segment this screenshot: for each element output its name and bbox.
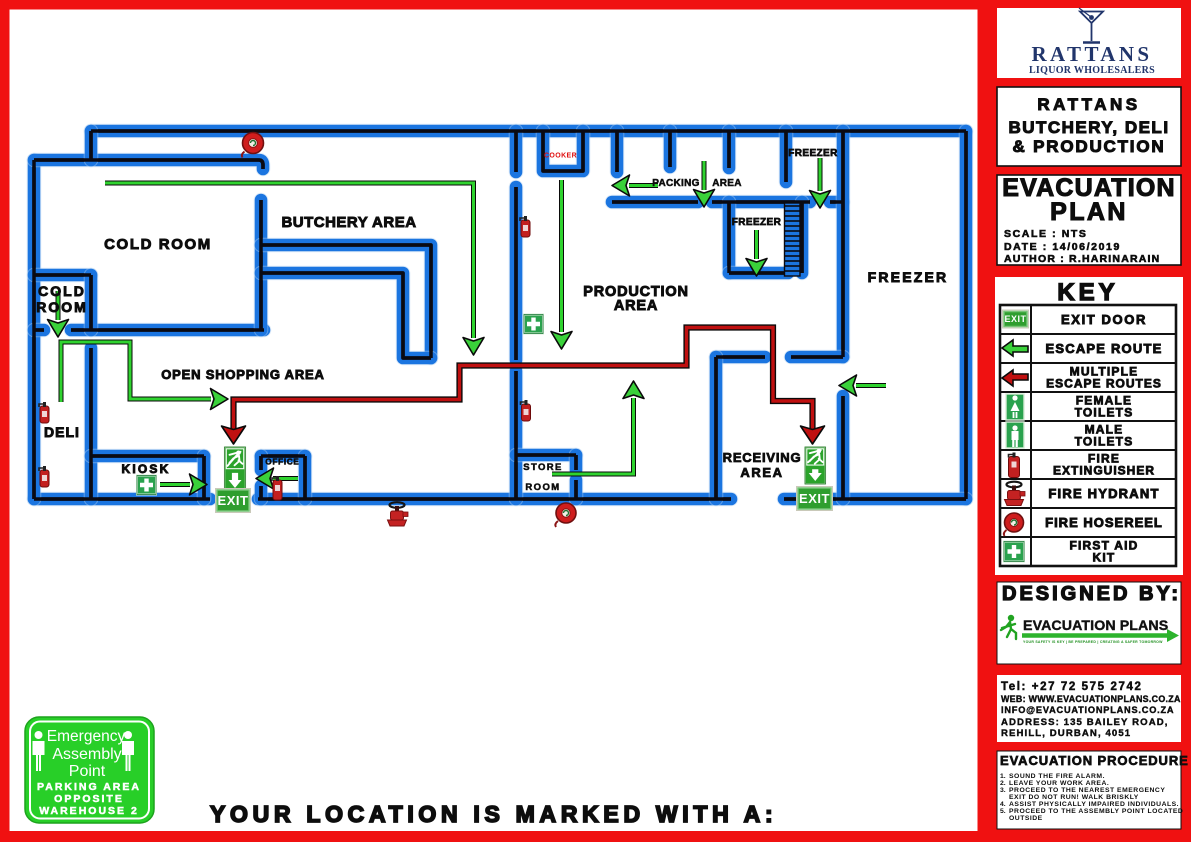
svg-text:YOUR SAFETY IS KEY | BE PREPAR: YOUR SAFETY IS KEY | BE PREPARED | CREAT… — [1023, 640, 1163, 644]
svg-text:LEAVE YOUR WORK AREA.: LEAVE YOUR WORK AREA. — [1009, 780, 1109, 787]
svg-text:EXIT DOOR: EXIT DOOR — [1061, 312, 1147, 327]
svg-text:FREEZER: FREEZER — [788, 148, 838, 159]
svg-text:EXIT: EXIT — [218, 493, 249, 508]
svg-text:BUTCHERY, DELI: BUTCHERY, DELI — [1008, 118, 1169, 137]
svg-text:KIOSK: KIOSK — [121, 462, 170, 476]
svg-text:ASSIST PHYSICALLY IMPAIRED IND: ASSIST PHYSICALLY IMPAIRED INDIVIDUALS. — [1009, 801, 1179, 808]
svg-text:DESIGNED BY:: DESIGNED BY: — [1002, 583, 1181, 605]
svg-text:TOILETS: TOILETS — [1075, 406, 1134, 420]
svg-text:FIRE HOSEREEL: FIRE HOSEREEL — [1045, 515, 1163, 530]
svg-text:Emergency: Emergency — [47, 728, 126, 745]
svg-text:OUTSIDE: OUTSIDE — [1009, 815, 1043, 822]
svg-text:FREEZER: FREEZER — [732, 217, 782, 228]
svg-text:YOUR LOCATION IS MARKED WITH A: YOUR LOCATION IS MARKED WITH A: — [210, 801, 777, 827]
svg-text:RATTANS: RATTANS — [1037, 95, 1140, 114]
svg-text:2.: 2. — [1000, 780, 1006, 787]
svg-text:3.: 3. — [1000, 787, 1006, 794]
svg-text:INFO@EVACUATIONPLANS.CO.ZA: INFO@EVACUATIONPLANS.CO.ZA — [1001, 705, 1174, 715]
svg-text:AREA: AREA — [712, 178, 742, 189]
svg-text:COLD: COLD — [38, 283, 86, 299]
svg-text:AREA: AREA — [614, 298, 658, 314]
svg-text:EVACUATION PLANS: EVACUATION PLANS — [1023, 618, 1168, 634]
svg-text:BUTCHERY AREA: BUTCHERY AREA — [281, 214, 416, 231]
svg-text:DELI: DELI — [44, 424, 80, 440]
svg-text:SOUND THE FIRE ALARM.: SOUND THE FIRE ALARM. — [1009, 773, 1105, 780]
svg-text:OFFICE: OFFICE — [265, 458, 299, 467]
svg-text:TOILETS: TOILETS — [1075, 435, 1134, 449]
svg-text:KIT: KIT — [1093, 551, 1116, 565]
svg-text:EXTINGUISHER: EXTINGUISHER — [1053, 464, 1155, 478]
svg-text:4.: 4. — [1000, 801, 1006, 808]
svg-text:FREEZER: FREEZER — [868, 269, 949, 285]
svg-text:STORE: STORE — [523, 462, 563, 473]
svg-text:PLAN: PLAN — [1050, 198, 1128, 226]
svg-text:EXIT: EXIT — [799, 491, 830, 506]
svg-text:COLD ROOM: COLD ROOM — [104, 236, 212, 253]
svg-text:PROCEED TO THE NEAREST EMERGEN: PROCEED TO THE NEAREST EMERGENCY — [1009, 787, 1165, 794]
svg-text:PROCEED TO THE ASSEMBLY POINT: PROCEED TO THE ASSEMBLY POINT LOCATED — [1009, 808, 1183, 815]
svg-text:AREA: AREA — [740, 465, 783, 480]
svg-text:REHILL, DURBAN, 4051: REHILL, DURBAN, 4051 — [1001, 728, 1131, 739]
svg-text:Point: Point — [69, 763, 106, 780]
svg-text:Tel: +27 72 575 2742: Tel: +27 72 575 2742 — [1001, 681, 1142, 693]
svg-text:KEY: KEY — [1057, 279, 1118, 306]
svg-text:WEB: WWW.EVACUATIONPLANS.CO.ZA: WEB: WWW.EVACUATIONPLANS.CO.ZA — [1001, 694, 1181, 704]
svg-text:ESCAPE ROUTES: ESCAPE ROUTES — [1046, 377, 1162, 391]
svg-text:EXIT DO NOT RUN! WALK BRISKLY: EXIT DO NOT RUN! WALK BRISKLY — [1009, 794, 1139, 801]
svg-text:AUTHOR : R.HARINARAIN: AUTHOR : R.HARINARAIN — [1004, 253, 1160, 265]
svg-text:RATTANS: RATTANS — [1031, 42, 1152, 66]
svg-text:RECEIVING: RECEIVING — [723, 450, 802, 465]
svg-text:OPPOSITE: OPPOSITE — [54, 793, 124, 805]
svg-text:PACKING: PACKING — [652, 178, 699, 189]
svg-text:FIRE HYDRANT: FIRE HYDRANT — [1048, 486, 1159, 501]
svg-text:PARKING AREA: PARKING AREA — [37, 781, 141, 793]
svg-text:LIQUOR WHOLESALERS: LIQUOR WHOLESALERS — [1029, 65, 1155, 76]
svg-text:EXIT: EXIT — [1004, 314, 1026, 324]
svg-text:SCALE : NTS: SCALE : NTS — [1004, 228, 1088, 240]
svg-text:& PRODUCTION: & PRODUCTION — [1013, 137, 1166, 156]
svg-text:ROOM: ROOM — [525, 482, 560, 493]
svg-text:Assembly: Assembly — [52, 746, 121, 763]
svg-text:EVACUATION PROCEDURE: EVACUATION PROCEDURE — [1000, 753, 1189, 768]
svg-text:ADDRESS: 135 BAILEY ROAD,: ADDRESS: 135 BAILEY ROAD, — [1001, 717, 1169, 728]
svg-text:COOKER: COOKER — [544, 153, 577, 160]
svg-text:DATE : 14/06/2019: DATE : 14/06/2019 — [1004, 241, 1121, 253]
svg-text:WAREHOUSE 2: WAREHOUSE 2 — [39, 805, 139, 817]
svg-text:5.: 5. — [1000, 808, 1006, 815]
svg-text:OPEN SHOPPING AREA: OPEN SHOPPING AREA — [161, 367, 324, 382]
svg-text:ROOM: ROOM — [36, 299, 88, 315]
svg-text:ESCAPE ROUTE: ESCAPE ROUTE — [1046, 341, 1163, 356]
svg-text:1.: 1. — [1000, 773, 1006, 780]
